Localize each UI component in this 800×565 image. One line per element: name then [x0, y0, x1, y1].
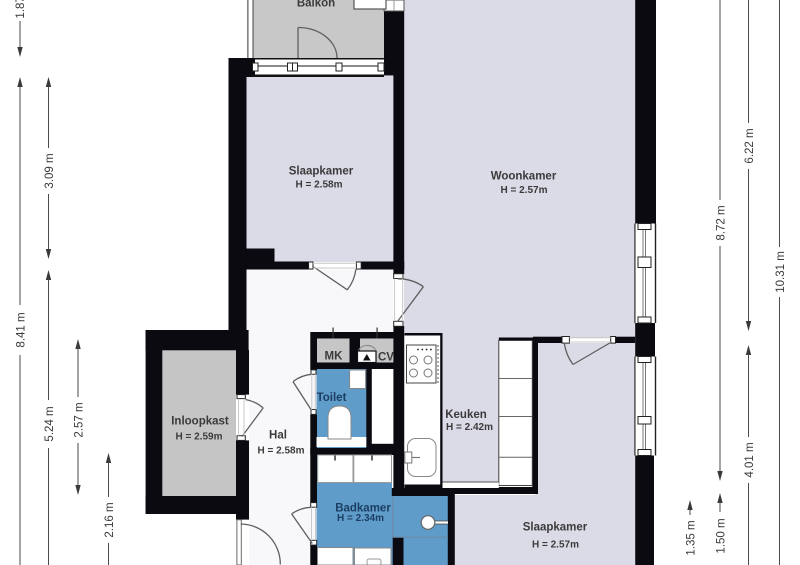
- svg-text:Keuken: Keuken: [445, 409, 487, 421]
- svg-text:H = 2.34m: H = 2.34m: [337, 513, 384, 524]
- svg-text:Woonkamer: Woonkamer: [491, 170, 557, 182]
- svg-text:H = 2.42m: H = 2.42m: [446, 422, 493, 433]
- svg-text:1.87 m: 1.87 m: [15, 0, 27, 19]
- svg-text:Toilet: Toilet: [317, 392, 347, 404]
- svg-text:Balkon: Balkon: [297, 0, 335, 10]
- svg-text:Slaapkamer: Slaapkamer: [523, 521, 588, 533]
- svg-text:8.72 m: 8.72 m: [715, 205, 727, 240]
- svg-text:5.24 m: 5.24 m: [44, 406, 56, 441]
- svg-text:Inloopkast: Inloopkast: [171, 415, 229, 427]
- svg-text:Hal: Hal: [269, 429, 287, 441]
- svg-text:8.41 m: 8.41 m: [15, 312, 27, 347]
- svg-text:2.16 m: 2.16 m: [104, 502, 116, 537]
- svg-text:H = 2.58m: H = 2.58m: [296, 180, 343, 191]
- svg-text:CV: CV: [378, 351, 394, 363]
- svg-text:1.50 m: 1.50 m: [715, 518, 727, 553]
- svg-text:H = 2.58m: H = 2.58m: [258, 446, 305, 457]
- svg-text:H = 2.59m: H = 2.59m: [176, 432, 223, 443]
- svg-text:3.09 m: 3.09 m: [44, 153, 56, 188]
- svg-text:4.01 m: 4.01 m: [744, 442, 756, 477]
- svg-text:Slaapkamer: Slaapkamer: [289, 165, 354, 177]
- svg-text:H = 2.57m: H = 2.57m: [501, 185, 548, 196]
- svg-text:6.22 m: 6.22 m: [744, 128, 756, 163]
- svg-text:10.31 m: 10.31 m: [775, 251, 787, 293]
- svg-text:MK: MK: [325, 350, 344, 362]
- svg-text:2.57 m: 2.57 m: [73, 402, 85, 437]
- svg-text:H = 2.57m: H = 2.57m: [532, 540, 579, 551]
- svg-text:1.35 m: 1.35 m: [685, 520, 697, 555]
